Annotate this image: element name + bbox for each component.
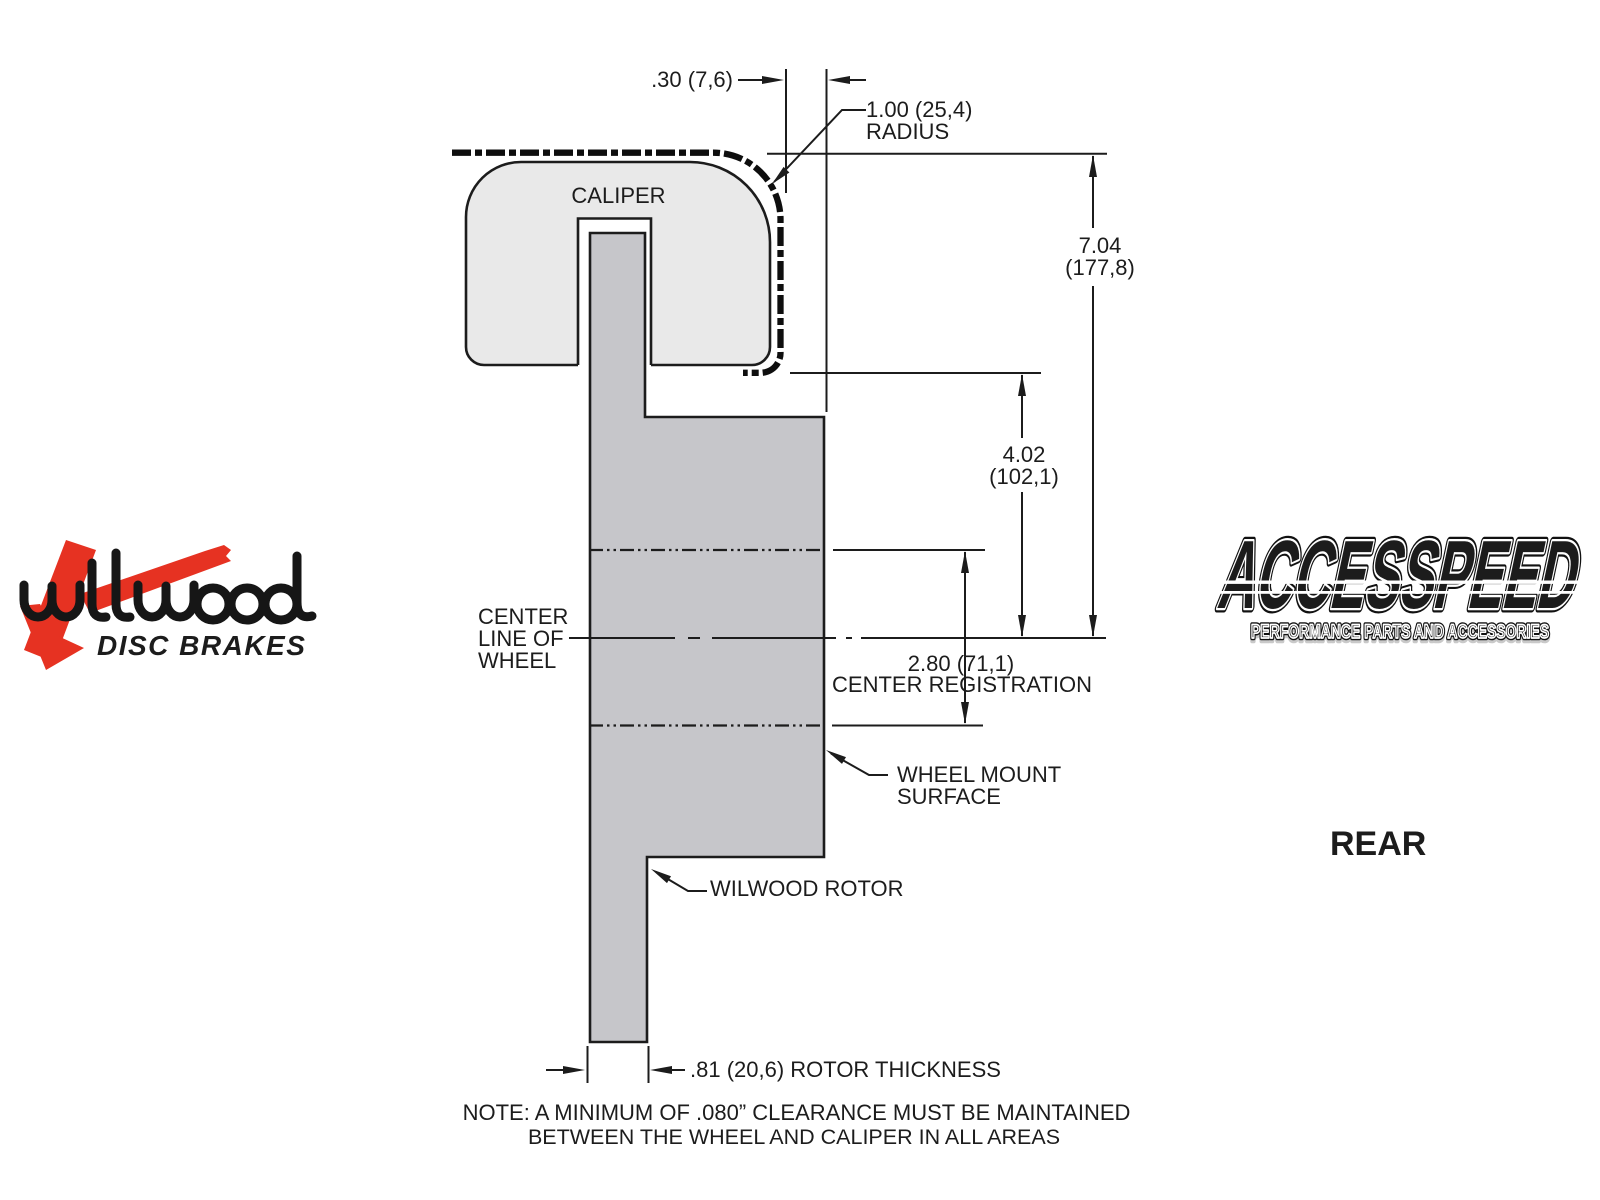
svg-text:.30 (7,6): .30 (7,6) [651,67,733,92]
svg-text:ACCESSPEED: ACCESSPEED [1212,520,1591,629]
svg-text:WILWOOD ROTOR: WILWOOD ROTOR [710,876,904,901]
svg-text:RADIUS: RADIUS [866,119,949,144]
svg-text:CENTER REGISTRATION: CENTER REGISTRATION [832,672,1092,697]
svg-text:(102,1): (102,1) [989,464,1059,489]
svg-text:BETWEEN THE WHEEL AND CALIPER: BETWEEN THE WHEEL AND CALIPER IN ALL ARE… [528,1125,1060,1149]
svg-text:WHEEL: WHEEL [478,648,556,673]
svg-text:CALIPER: CALIPER [571,183,665,208]
svg-text:NOTE: A MINIMUM OF .080” CLEAR: NOTE: A MINIMUM OF .080” CLEARANCE MUST … [463,1100,1131,1125]
svg-text:DISC BRAKES: DISC BRAKES [97,630,306,661]
svg-text:(177,8): (177,8) [1065,255,1135,280]
svg-text:SURFACE: SURFACE [897,784,1001,809]
svg-text:PERFORMANCE PARTS AND ACCESSOR: PERFORMANCE PARTS AND ACCESSORIES [1251,622,1549,643]
svg-text:.81 (20,6) ROTOR THICKNESS: .81 (20,6) ROTOR THICKNESS [690,1057,1001,1082]
svg-text:REAR: REAR [1330,825,1426,863]
